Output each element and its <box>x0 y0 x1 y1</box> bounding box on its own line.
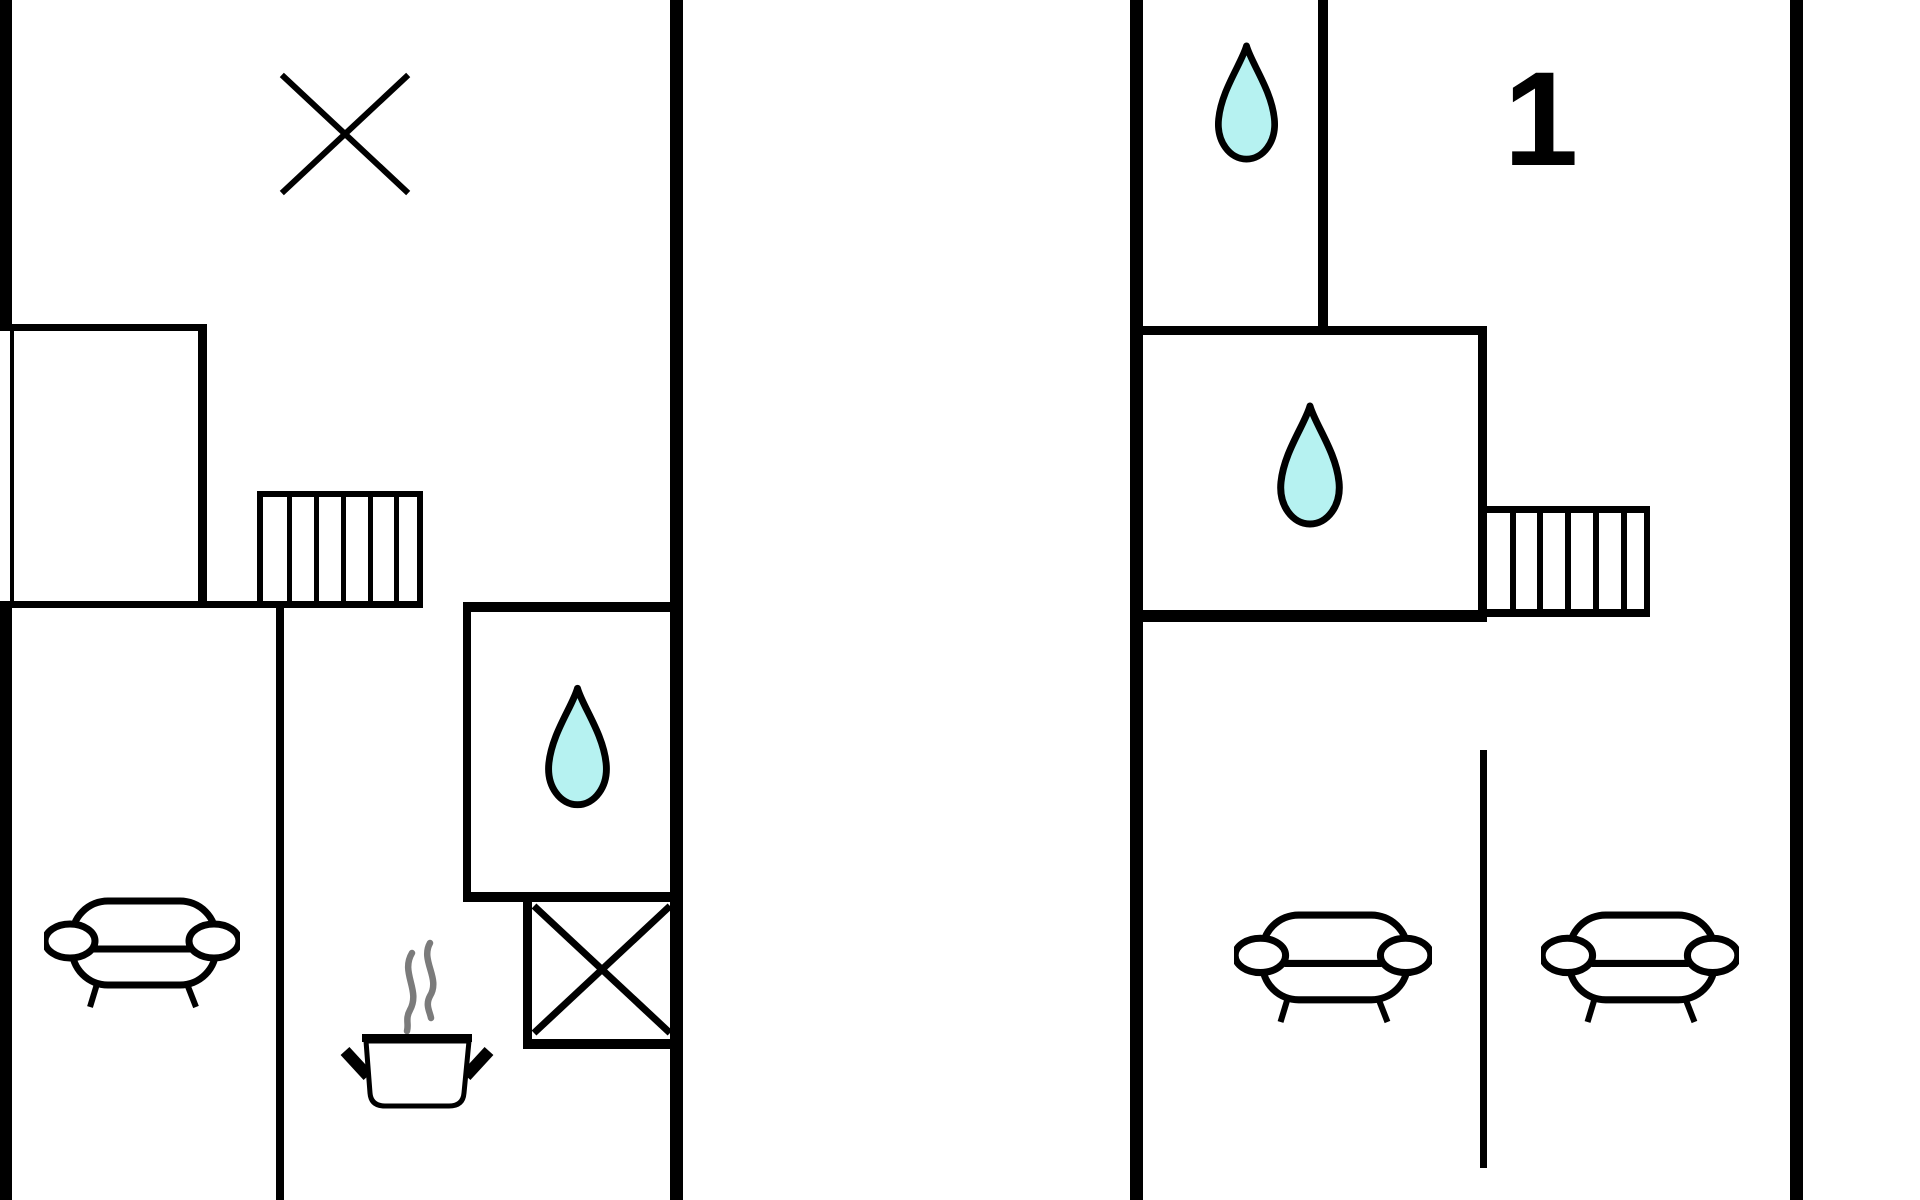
stairs-icon-right <box>1487 506 1650 617</box>
crossed-box-icon <box>523 892 676 1049</box>
water-drop-toilet-right <box>1218 46 1274 159</box>
wall-right-plan-right <box>1790 0 1803 1200</box>
sofa-right-plan-1 <box>1235 915 1431 1022</box>
sofa-left-plan <box>45 901 239 1007</box>
room-divider-wall <box>1480 750 1487 1168</box>
sofa-right-plan-2 <box>1542 915 1738 1022</box>
wall-toilet-right <box>1318 0 1328 331</box>
wall-kitchen <box>276 601 284 1200</box>
wall-left-plan-right <box>670 0 683 1200</box>
cooking-pot-icon <box>345 943 489 1106</box>
floor-plan-right: 1 <box>1130 0 1803 1200</box>
floor-plan-left <box>0 0 683 1200</box>
wall-left-outer-top <box>0 0 12 331</box>
window-x-icon <box>284 77 406 191</box>
water-drop-bathroom-right <box>1281 406 1340 524</box>
unit-number-label: 1 <box>1504 45 1579 194</box>
wall-closet-bottom <box>0 601 423 608</box>
water-drop-bathroom-left <box>549 688 607 804</box>
floor-plan-canvas: 1 <box>0 0 1920 1200</box>
stairs-icon <box>257 491 423 608</box>
wall-left-outer-bottom <box>0 601 12 1200</box>
wall-right-plan-left <box>1130 0 1143 1200</box>
floor-plan-drawing: 1 <box>0 0 1920 1200</box>
wall-closet-right <box>198 324 207 608</box>
wall-left-thin <box>10 324 14 608</box>
wall-closet-top <box>0 324 207 331</box>
